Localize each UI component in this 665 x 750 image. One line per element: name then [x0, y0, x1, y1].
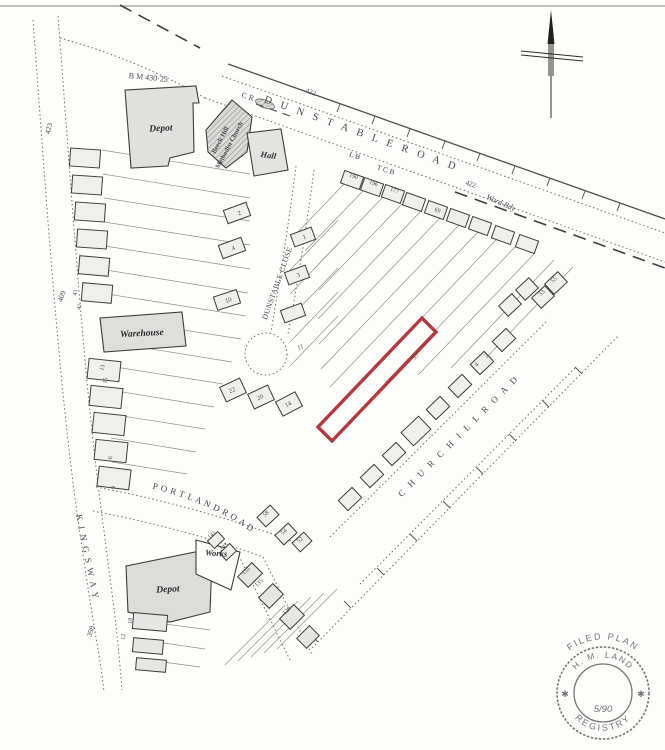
house-number: 18	[128, 618, 135, 625]
telephone-box-label: T C B	[376, 163, 396, 177]
house-number: 11	[296, 343, 304, 352]
buildings	[100, 86, 288, 622]
hm-land-registry-stamp: FILED PLAN H. M. LAND REGISTRY ✱ ✱ 5/90	[557, 631, 649, 739]
stamp-signature	[583, 675, 627, 691]
church-building	[206, 100, 252, 168]
level-422-west: 422	[304, 87, 317, 98]
ward-bdy-label: Ward Bdy	[485, 192, 518, 213]
house-number: 43	[72, 289, 79, 296]
parcel-409: 409	[56, 289, 68, 303]
level-422-east: 422	[464, 179, 477, 190]
land-registry-plan: D U N S T A B L E R O A D C H U R C H I …	[0, 0, 665, 750]
house-number: 13	[99, 364, 106, 371]
depot-north-label: Depot	[148, 123, 173, 134]
stamp-hm-land: H. M. LAND	[570, 650, 636, 672]
cr-label: C R	[240, 90, 256, 103]
house-number: 57	[411, 352, 421, 362]
depot-south-label: Depot	[155, 584, 180, 595]
house-number: 41	[76, 303, 83, 310]
stamp-date: 5/90	[594, 704, 613, 715]
portland-road-label: P O R T L A N D R O A D	[152, 481, 257, 534]
house-number: 15	[102, 377, 109, 384]
filed-plan-page: D U N S T A B L E R O A D C H U R C H I …	[0, 0, 665, 750]
parcel-423: 423	[43, 122, 55, 135]
north-arrow-icon	[521, 10, 583, 118]
parcel-398: 398	[85, 624, 97, 638]
stamp-filed-plan: FILED PLAN	[565, 631, 641, 652]
house-number: 12	[121, 634, 128, 641]
stamp-star-left-icon: ✱	[561, 689, 569, 699]
dunstable-road-label: D U N S T A B L E R O A D	[263, 94, 461, 173]
bench-mark-label: B M 430·25	[128, 71, 168, 84]
stamp-star-right-icon: ✱	[637, 689, 645, 699]
letter-box-label: L B	[348, 150, 361, 162]
